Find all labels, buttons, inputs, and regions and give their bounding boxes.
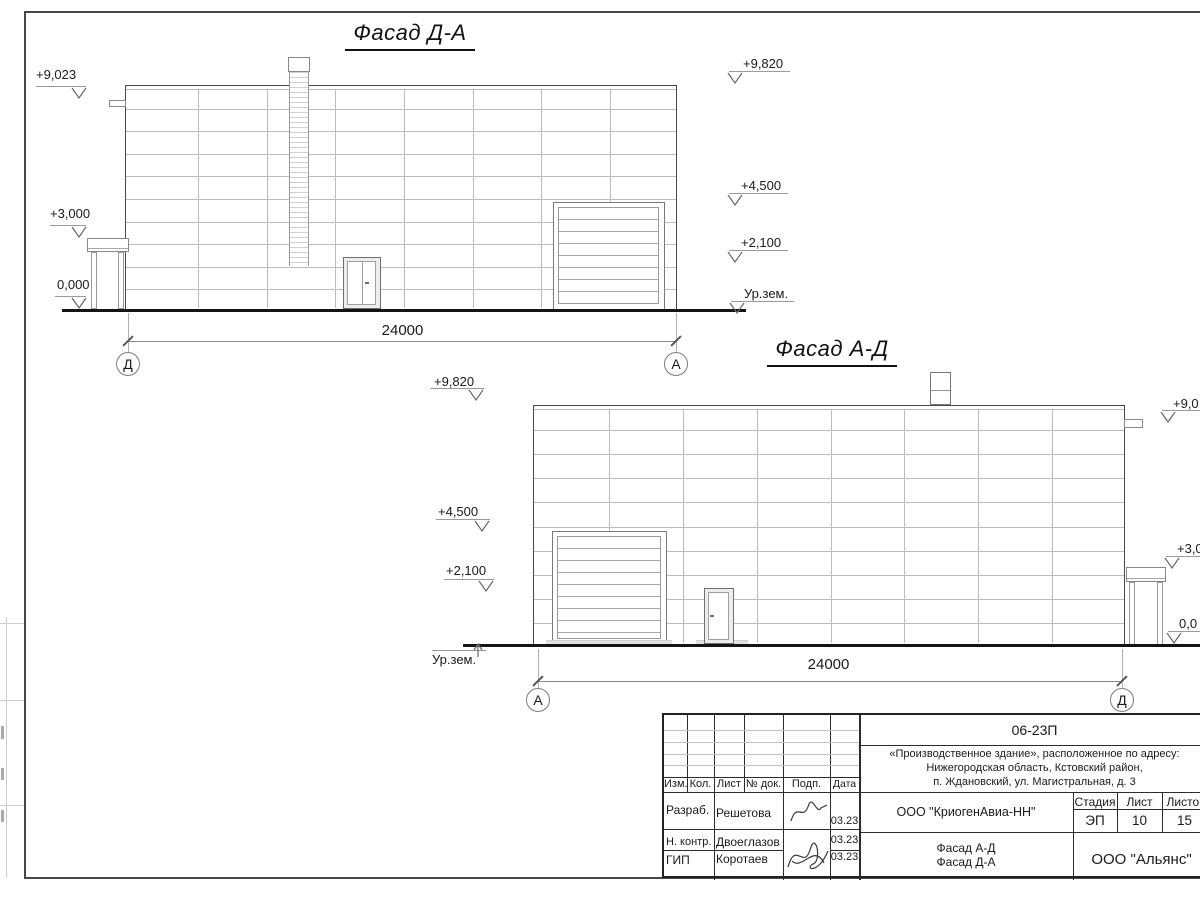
frame-top — [24, 11, 1200, 13]
sheets-total: 15 — [1162, 813, 1200, 828]
porch-canopy — [1126, 567, 1166, 582]
margin-line — [0, 623, 24, 624]
entrance-door — [704, 588, 734, 644]
margin-text-fragment — [1, 768, 4, 780]
tb-vline — [714, 715, 715, 880]
elevation-mark-label: Ур.зем. — [744, 286, 788, 301]
level-mark-icon — [727, 251, 743, 264]
tb-hline — [859, 832, 1200, 833]
panel-line — [534, 454, 1124, 455]
address-line: Нижегородская область, Кстовский район, — [861, 762, 1200, 774]
elevation-mark-label: +9,023 — [36, 67, 76, 82]
wall-protrusion — [109, 100, 126, 107]
facade-ad-title-text: Фасад А-Д — [767, 336, 896, 367]
designer-company: ООО "КриогенАвиа-НН" — [859, 805, 1073, 819]
margin-text-fragment — [1, 726, 4, 739]
panel-line — [534, 430, 1124, 431]
panel-line — [126, 176, 676, 177]
col-podp: Подп. — [783, 778, 830, 790]
porch-canopy — [87, 238, 129, 252]
garage-slats — [557, 536, 661, 639]
elevation-mark-label: +4,500 — [741, 178, 781, 193]
ground-line — [463, 644, 1200, 647]
door-handle — [365, 282, 369, 284]
canopy-edge — [1127, 578, 1165, 579]
level-mark-icon — [1160, 411, 1176, 424]
row-role: Разраб. — [666, 803, 714, 817]
row-role: Н. контр. — [666, 836, 714, 848]
axis-circle: А — [526, 688, 550, 712]
sectional-gate — [552, 531, 667, 645]
level-mark-icon — [1164, 557, 1180, 570]
col-data: Дата — [830, 778, 859, 790]
tb-hline-light — [664, 730, 859, 731]
axis-circle: А — [664, 352, 688, 376]
tb-hline — [1073, 809, 1200, 810]
ladder-cage-top — [288, 57, 310, 72]
panel-line — [126, 109, 676, 110]
axis-letter: Д — [1117, 692, 1126, 708]
panel-line — [534, 527, 1124, 528]
sheet-label: Лист — [1117, 795, 1162, 809]
dimension-line — [128, 341, 676, 342]
facade-da-dimension-text: 24000 — [340, 322, 465, 339]
margin-line — [0, 805, 24, 806]
porch-post — [1129, 582, 1135, 646]
title-block: Изм.Кол.Лист№ док.Подп.ДатаРазраб.Решето… — [662, 713, 1200, 878]
tb-hline-light — [664, 742, 859, 743]
extension-line — [676, 313, 677, 352]
address-line: «Производственное здание», расположенное… — [861, 748, 1200, 760]
divider-line — [931, 390, 950, 391]
panel-line — [126, 154, 676, 155]
row-date: 03.23 — [830, 815, 859, 827]
elevation-mark-label: 0,000 — [57, 277, 90, 292]
sheet-title-line: Фасад А-Д — [859, 841, 1073, 855]
tb-hline-light — [664, 754, 859, 755]
margin-text-fragment — [1, 810, 4, 822]
level-mark-icon — [729, 302, 745, 315]
stage-label: Стадия — [1073, 795, 1117, 809]
row-name: Решетова — [716, 806, 782, 820]
sheet-number: 10 — [1117, 813, 1162, 828]
col-doc: № док. — [744, 778, 783, 790]
tb-hline — [859, 745, 1200, 746]
elevation-mark-label: +2,100 — [446, 563, 486, 578]
signature — [785, 795, 829, 827]
facade-ad-title: Фасад А-Д — [712, 336, 952, 367]
axis-circle: Д — [1110, 688, 1134, 712]
col-list: Лист — [714, 778, 744, 790]
drawing-sheet: Фасад Д-АФасад А-Д24000ДА24000АД+9,023+3… — [0, 0, 1200, 900]
level-mark-icon — [727, 72, 743, 85]
ground-arrow-icon — [472, 642, 484, 658]
elevation-mark-label: +4,500 — [438, 504, 478, 519]
panel-line — [534, 478, 1124, 479]
margin-line — [6, 617, 7, 878]
elevation-mark-label: +3,0 — [1177, 541, 1200, 556]
porch-post — [118, 252, 124, 309]
sheet-title-line: Фасад Д-А — [859, 855, 1073, 869]
col-izm: Изм. — [664, 778, 687, 790]
elevation-mark-label: +3,000 — [50, 206, 90, 221]
address-line: п. Ждановский, ул. Магистральная, д. 3 — [861, 776, 1200, 788]
axis-letter: Д — [123, 356, 132, 372]
stage-value: ЭП — [1073, 813, 1117, 828]
row-role: ГИП — [666, 853, 714, 867]
panel-line — [126, 131, 676, 132]
row-date: 03.23 — [830, 851, 859, 863]
door-handle — [710, 615, 714, 617]
axis-letter: А — [533, 692, 542, 708]
canopy-edge — [88, 248, 128, 249]
sectional-gate — [553, 202, 665, 310]
elevation-mark-label: 0,0 — [1179, 616, 1197, 631]
level-mark-icon — [71, 226, 87, 239]
drawing-layer: Фасад Д-АФасад А-Д24000ДА24000АД+9,023+3… — [0, 0, 1200, 900]
contractor: ООО "Альянс" — [1073, 851, 1200, 868]
signature — [784, 831, 830, 877]
level-mark-icon — [468, 389, 484, 402]
margin-line — [0, 700, 24, 701]
elevation-mark-label: Ур.зем. — [432, 652, 476, 667]
elevation-mark-label: +2,100 — [741, 235, 781, 250]
level-mark-icon — [478, 580, 494, 593]
wall-protrusion — [1124, 419, 1143, 428]
elevation-mark-label: +9,820 — [743, 56, 783, 71]
facade-da-title-text: Фасад Д-А — [345, 20, 474, 51]
level-mark-icon — [71, 87, 87, 100]
level-mark-icon — [727, 194, 743, 207]
facade-da-title: Фасад Д-А — [290, 20, 530, 51]
panel-line — [126, 199, 676, 200]
entrance-door — [343, 257, 381, 309]
level-mark-icon — [474, 520, 490, 533]
tb-hline-light — [664, 765, 859, 766]
sheets-label: Листов — [1162, 795, 1200, 809]
row-date: 03.23 — [830, 834, 859, 846]
parapet-line — [126, 89, 676, 90]
elevation-mark-label: +9,820 — [434, 374, 474, 389]
level-mark-icon — [71, 297, 87, 310]
ground-line — [62, 309, 746, 312]
porch-post — [1157, 582, 1163, 646]
extension-line — [128, 313, 129, 352]
garage-slats — [558, 207, 659, 304]
doc-number: 06-23П — [859, 722, 1200, 738]
facade-ad-dimension-text: 24000 — [766, 656, 891, 673]
level-mark-icon — [1166, 632, 1182, 645]
panel-line — [534, 502, 1124, 503]
row-name: Коротаев — [716, 852, 782, 866]
row-name: Двоеглазов — [716, 835, 782, 849]
dimension-line — [538, 681, 1122, 682]
elevation-mark-label: +9,0 — [1173, 396, 1199, 411]
porch-post — [91, 252, 97, 309]
parapet-line — [534, 409, 1124, 410]
axis-letter: А — [671, 356, 680, 372]
axis-circle: Д — [116, 352, 140, 376]
tb-hline — [664, 792, 1200, 793]
roof-chimney — [930, 372, 951, 405]
door-leaf-divider — [362, 261, 363, 305]
frame-left — [24, 11, 26, 879]
roof-ladder — [289, 57, 309, 266]
col-kol: Кол. — [687, 778, 714, 790]
